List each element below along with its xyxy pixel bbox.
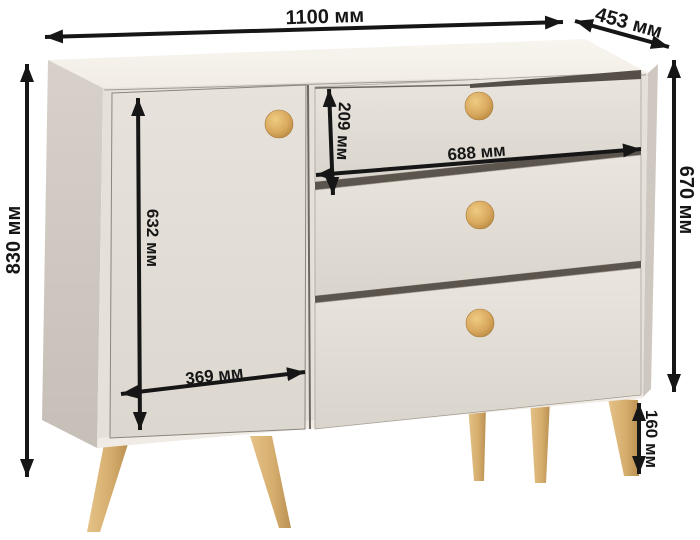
product-dimension-diagram: 1100 мм 453 мм 830 мм 670 мм 632 мм 209 … [0,0,700,540]
leg-rear-right [530,400,550,483]
leg-front-middle [250,436,291,528]
drawer-1-knob [465,92,493,120]
drawer-2-knob [466,201,494,229]
dim-overall-width-label: 1100 мм [285,5,364,29]
dim-body-height-label: 670 мм [675,166,697,235]
dim-door-height-arrow [138,98,140,430]
dim-top-drawer-height-label: 209 мм [333,102,354,161]
dim-leg-height-label: 160 мм [642,410,661,468]
door-knob [265,110,293,138]
cabinet-left-side-face [42,60,103,448]
dim-overall-height-label: 830 мм [3,206,25,275]
dim-door-height-label: 632 мм [143,209,162,267]
leg-rear-middle [468,406,486,481]
leg-front-right [608,399,639,476]
diagram-canvas: 1100 мм 453 мм 830 мм 670 мм 632 мм 209 … [0,0,700,540]
leg-front-left [87,444,128,532]
drawer-3-knob [466,309,494,337]
